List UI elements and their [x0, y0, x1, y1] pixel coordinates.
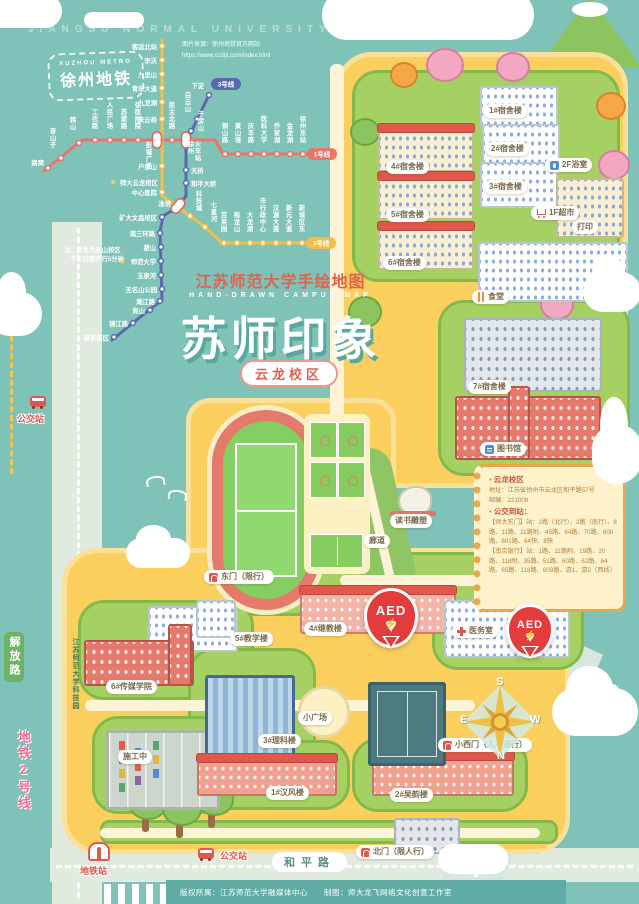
svg-text:2号线: 2号线	[313, 239, 330, 248]
label-text: 5#宿舍楼	[391, 209, 424, 221]
lightning-icon: ⚡	[385, 617, 397, 633]
source-line2: https://www.xzdtjt.com/index.html	[182, 51, 270, 62]
metro-station-label: 苏堤路	[121, 107, 128, 130]
metro-station-label: 新城区东	[299, 203, 306, 233]
metro-station-dot	[160, 44, 165, 49]
metro-station-label: 科技城	[196, 189, 203, 212]
metro-station-dot	[158, 231, 163, 236]
xuzhou-metro-badge: XUZHOU METRO 徐州地铁	[47, 50, 145, 101]
metro-station-dot	[59, 156, 64, 161]
metro-station-dot	[160, 58, 165, 63]
metro-station-label: 子房山	[198, 110, 205, 132]
metro-station-dot	[160, 86, 165, 91]
info-bus-bank: 【南京银行】站：1路、11路附、19路、20路、118附、35路、51路、60路…	[489, 547, 617, 576]
metro-station-dot	[77, 141, 82, 146]
label-text: 北门（限人行）	[373, 846, 429, 858]
metro-station-label: 乔家湖	[273, 121, 281, 144]
metro-station-dot	[136, 138, 141, 143]
metro-station-label: 焦山	[131, 306, 145, 315]
label-east-gate: 东门（限行）	[204, 570, 274, 584]
label-metro-line2-road: 地铁2号线	[14, 730, 33, 812]
metro-station-dot	[159, 273, 164, 278]
metro-station-dot	[188, 214, 193, 219]
metro-station-label: 金龙湖	[286, 121, 294, 144]
label-building3: 3#理科楼	[258, 734, 301, 748]
metro-station-label: 濉江路	[135, 297, 156, 306]
metro-station-dot	[112, 335, 117, 340]
basketball-courts-panel	[304, 414, 370, 574]
label-text: 3#宿舍楼	[489, 181, 522, 193]
metro-station-dot	[160, 164, 165, 169]
metro-station-label: 火车站	[195, 140, 202, 162]
book-icon	[485, 445, 494, 454]
metro-station-dot	[170, 138, 175, 143]
metro-station-dot	[262, 152, 267, 157]
metro-station-dot	[160, 72, 165, 77]
basketball-court	[310, 462, 337, 498]
metro-station-dot	[131, 321, 136, 326]
metro-station-label: 拖龙山	[233, 210, 241, 233]
label-text: 5#教学楼	[235, 633, 268, 645]
metro-station-dot	[288, 152, 293, 157]
metro-note-line1: 注：此处为泉山校区	[64, 245, 121, 254]
media-college-tower	[168, 624, 192, 686]
metro-station-label: 师大云龙校区	[120, 178, 158, 187]
source-line1: 图片来源：徐州地铁官方网站	[182, 40, 270, 51]
metro-station-dot	[184, 181, 189, 186]
label-canteen: 食堂	[472, 290, 509, 304]
metro-station-label: 客运北站	[132, 42, 158, 51]
metro-station-dot	[235, 241, 240, 246]
compass-rose: S E W N	[462, 680, 538, 764]
metro-station-label: 汉源大道	[273, 203, 280, 233]
metro-station-dot	[274, 241, 279, 246]
label-building5: 5#教学楼	[230, 632, 273, 646]
info-address: 地址：江苏省徐州市云龙区和平路57号	[489, 486, 617, 496]
metro-station-dot	[301, 152, 306, 157]
tree-pink	[598, 150, 630, 180]
cloud	[583, 272, 639, 312]
label-text: 廊道	[369, 535, 385, 547]
cloud	[552, 688, 638, 736]
map-subtitle-zh: 江苏师范大学手绘地图	[188, 268, 373, 292]
metro-station-label: 七星河	[211, 200, 218, 223]
metro-station-dot	[287, 241, 292, 246]
gate-icon	[361, 848, 370, 857]
heart-icon: ♥⚡	[385, 618, 397, 634]
bird-icon	[168, 489, 188, 501]
metro-station-dot	[189, 129, 194, 134]
label-tech-park: 江苏师范大学科技园	[70, 638, 80, 710]
label-metro-station: 地铁站	[80, 864, 107, 877]
metro-station-label: 白云山	[185, 90, 192, 113]
metro-station-dot	[158, 299, 163, 304]
svg-text:3号线: 3号线	[218, 80, 235, 89]
label-dorm5: 5#宿舍楼	[386, 208, 429, 222]
info-bus-title: 公交到站：	[489, 506, 617, 517]
cloud	[438, 844, 508, 874]
metro-station-label: 矿大文昌校区	[119, 213, 157, 222]
metro-station-label: 庆云桥	[138, 115, 158, 124]
map-subtitle-en: HAND-DRAWN CAMPUS MAP	[188, 292, 373, 299]
label-jiefang-road: 解放路	[4, 632, 24, 682]
basketball-court	[338, 422, 365, 458]
cloud	[322, 0, 534, 40]
crosswalk	[104, 884, 168, 904]
campus-star-marker: ★	[109, 177, 117, 187]
metro-station-dot	[93, 138, 98, 143]
label-text: 小广场	[303, 712, 327, 724]
label-library: 图书馆	[480, 442, 526, 456]
label-plaza: 小广场	[298, 711, 332, 725]
label-bath: 2F浴室	[545, 158, 592, 172]
metro-station-label: 工农路	[91, 108, 99, 130]
metro-station-label: 九龙湖	[137, 98, 157, 107]
metro-station-label: 医科大学	[261, 115, 268, 144]
metro-station-label: 下淀	[191, 81, 204, 90]
fork-knife-icon	[477, 292, 485, 302]
metro-station-label: 大龙湖	[246, 210, 254, 233]
label-dorm2: 2#宿舍楼	[486, 142, 529, 156]
metro-station-dot	[184, 168, 189, 173]
metro-station-label: 中心医院	[132, 188, 158, 197]
label-dorm3: 3#宿舍楼	[484, 180, 527, 194]
metro-note-line2: 下车后需步行5分钟	[70, 254, 125, 263]
info-zipcode: 邮编：221009	[489, 496, 617, 506]
metro-station-label: 师范大学	[131, 257, 157, 266]
campus-info-box: 云龙校区 地址：江苏省徐州市云龙区和平路57号 邮编：221009 公交到站： …	[474, 464, 626, 612]
mountain-snowcap	[572, 2, 608, 17]
red-cross-icon	[457, 627, 466, 636]
metro-station-dot	[159, 245, 164, 250]
metro-station-dot	[160, 100, 165, 105]
label-dorm6: 6#宿舍楼	[383, 256, 426, 270]
metro-station-label: 和平大桥	[191, 179, 217, 188]
metro-station-label: 淮塔	[158, 199, 171, 208]
label-text: 2#宿舍楼	[491, 143, 524, 155]
metro-station-dot	[160, 287, 165, 292]
metro-station-dot	[160, 117, 165, 122]
label-building1: 1#汉风楼	[266, 786, 309, 800]
cloud	[126, 538, 190, 568]
label-text: 图书馆	[497, 443, 521, 455]
metro-station-dot	[236, 152, 241, 157]
label-text: 东门（限行）	[221, 571, 269, 583]
metro-station-label: 黄山垭	[235, 121, 242, 144]
metro-station-dot	[222, 241, 227, 246]
label-text: 6#宿舍楼	[388, 257, 421, 269]
metro-station-dot	[249, 152, 254, 157]
campus-badge: 云龙校区	[240, 360, 338, 387]
metro-station-dot	[261, 241, 266, 246]
credits-bar: 版权所属：江苏师范大学融媒体中心 制图：师大龙飞网络文化创意工作室	[166, 880, 566, 904]
metro-station-label: 铜山路	[222, 121, 229, 144]
transfer-station-marker	[153, 132, 162, 148]
heart-icon: ♥⚡	[525, 631, 535, 644]
label-text: 1#宿舍楼	[489, 105, 522, 117]
tennis-court	[310, 534, 363, 568]
metro-station-label: 杏山子	[50, 126, 57, 149]
metro-station-dot	[207, 93, 212, 98]
label-text: 施工中	[123, 751, 147, 763]
metro-station-label: 庆丰路	[248, 121, 255, 144]
label-building2: 2#吴韵楼	[390, 788, 433, 802]
label-text: 2F浴室	[562, 159, 587, 171]
compass-center	[491, 713, 509, 731]
label-text: 打印	[577, 221, 593, 233]
basketball-court	[310, 422, 337, 458]
gate-icon	[209, 573, 218, 582]
image-source-note: 图片来源：徐州地铁官方网站 https://www.xzdtjt.com/ind…	[182, 40, 270, 62]
label-text: 食堂	[488, 291, 504, 303]
label-text: 读书雕塑	[395, 515, 427, 527]
metro-station-label: 李沃	[143, 56, 157, 65]
label-bus-stop-south: 公交站	[220, 849, 247, 862]
label-bus-stop-west: 公交站	[17, 412, 44, 425]
metro-station-dot	[160, 215, 165, 220]
metro-station-dot	[203, 225, 208, 230]
metro-station-dot	[223, 152, 228, 157]
metro-station-label: 天桥	[191, 166, 204, 175]
bus-icon	[30, 396, 46, 407]
metro-station-label: 路窝	[31, 158, 44, 167]
label-text: 4#继教楼	[309, 623, 342, 635]
metro-station-label: 徐州	[187, 139, 195, 155]
label-text: 6#传媒学院	[111, 681, 152, 693]
metro-station-label: 翟山	[143, 243, 156, 252]
metro-station-label: 高新南区	[84, 333, 110, 342]
label-text: 7#宿舍楼	[473, 381, 506, 393]
metro-station-dot	[160, 190, 165, 195]
metro-station-label: 市行政中心	[259, 196, 267, 233]
label-market: 1F超市	[531, 206, 579, 220]
metro-station-dot	[300, 241, 305, 246]
compass-south: S	[496, 676, 503, 688]
metro-station-dot	[248, 241, 253, 246]
label-text: 1F超市	[549, 207, 574, 219]
info-bus-east-gate: 【师大东门】站：2路（北行）、2路（南行）、8路、11路、11路附、45路、64…	[489, 518, 617, 547]
metro-station-label: 民主北路	[169, 101, 176, 130]
gate-icon	[443, 741, 452, 750]
metro-station-dot	[275, 152, 280, 157]
label-text: 医务室	[469, 625, 493, 637]
bus-icon	[198, 848, 214, 859]
metro-station-dot	[122, 138, 127, 143]
metro-station-dot	[46, 166, 51, 171]
svg-text:1号线: 1号线	[314, 150, 331, 159]
cloud	[0, 0, 62, 28]
path-south	[100, 828, 540, 838]
cloud	[0, 292, 42, 336]
teaching-building-5-annex	[196, 600, 236, 638]
label-north-gate: 北门（限人行）	[356, 845, 434, 859]
campus-map-poster: 路窝杏山子韩山工农路人民广场苏堤路徐医附院民主北路铜山路黄山垭庆丰路医科大学乔家…	[0, 0, 639, 904]
metro-badge-zh: 徐州地铁	[50, 64, 143, 91]
label-text: 3#理科楼	[263, 735, 296, 747]
tree-orange	[390, 62, 418, 88]
label-text: 1#汉风楼	[271, 787, 304, 799]
tree-pink	[426, 48, 464, 82]
shower-icon	[550, 161, 559, 170]
compass-north: N	[497, 750, 505, 762]
cloud	[84, 12, 144, 28]
outdoor-basketball-courts	[368, 682, 446, 766]
metro-station-dot	[148, 308, 153, 313]
label-clinic: 医务室	[452, 624, 498, 638]
compass-east: E	[460, 714, 467, 726]
cart-icon	[536, 209, 546, 217]
metro-station-label: 无名山公园	[125, 285, 157, 294]
metro-line	[44, 140, 313, 171]
label-print: 打印	[572, 220, 598, 234]
metro-station-label: 人民广场	[107, 101, 114, 130]
label-sculpture: 读书雕塑	[390, 514, 432, 528]
label-building6: 6#传媒学院	[106, 680, 157, 694]
label-dorm4: 4#宿舍楼	[386, 160, 429, 174]
metro-station-label: 徐州东站	[299, 114, 307, 144]
metro-entrance-icon	[88, 842, 110, 861]
label-building4: 4#继教楼	[304, 622, 347, 636]
metro-station-label: 韩山	[70, 115, 77, 131]
bird-icon	[145, 475, 165, 488]
compass-west: W	[530, 714, 540, 726]
label-heping-road: 和平路	[272, 852, 347, 872]
label-text: 4#宿舍楼	[391, 161, 424, 173]
label-dorm1: 1#宿舍楼	[484, 104, 527, 118]
metro-station-label: 百果园	[221, 211, 228, 233]
tree-pink	[496, 52, 530, 82]
cloud	[592, 424, 639, 484]
basketball-court	[338, 462, 365, 498]
metro-station-label: 新元大道	[286, 203, 293, 233]
metro-station-label: 南三环路	[130, 229, 156, 238]
metro-station-label: 玉泉河	[137, 271, 157, 280]
credits-text: 版权所属：江苏师范大学融媒体中心 制图：师大龙飞网络文化创意工作室	[180, 887, 452, 898]
metro-station-label: 锦江路	[109, 319, 129, 328]
label-dorm7: 7#宿舍楼	[468, 380, 511, 394]
label-text: 2#吴韵楼	[395, 789, 428, 801]
label-construction: 施工中	[118, 750, 152, 764]
label-corridor: 廊道	[364, 534, 390, 548]
metro-station-dot	[159, 259, 164, 264]
metro-station-label: 彭城广场	[146, 140, 153, 170]
lightning-icon: ⚡	[524, 630, 536, 643]
tree-orange	[596, 92, 626, 120]
metro-station-dot	[108, 138, 113, 143]
